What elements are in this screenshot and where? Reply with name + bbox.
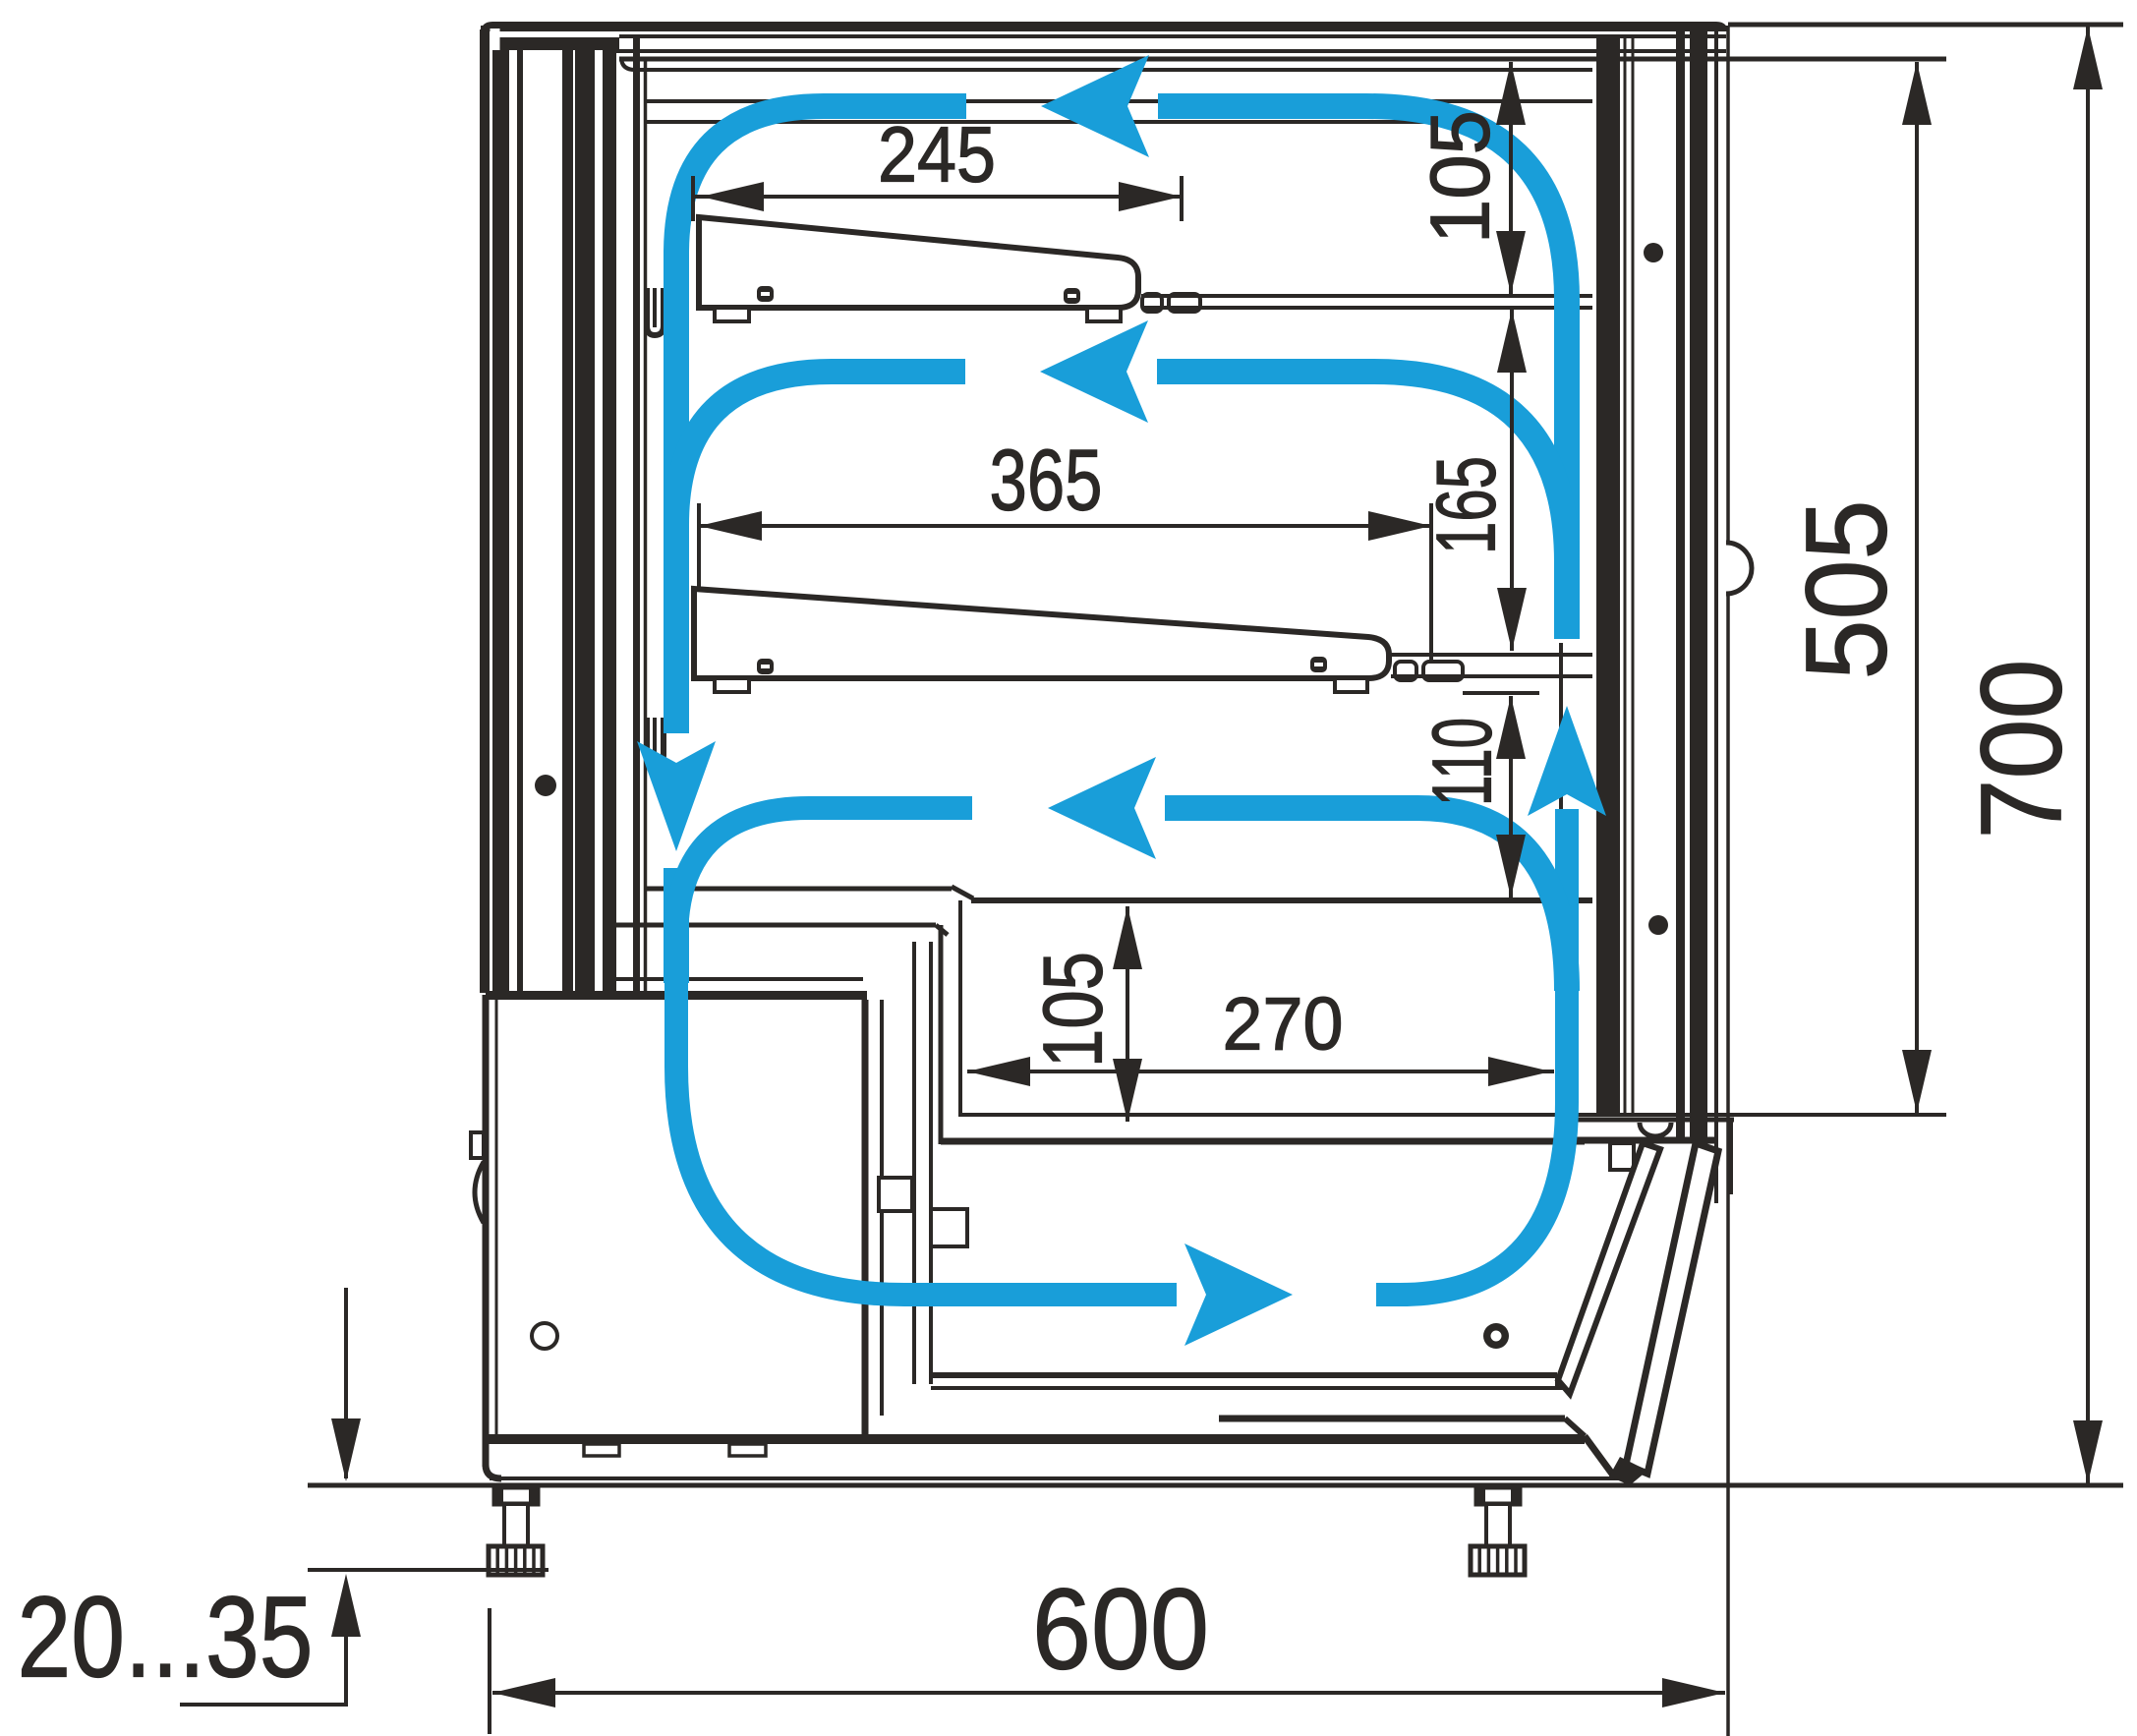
svg-text:505: 505 (1782, 500, 1911, 680)
svg-text:600: 600 (1032, 1565, 1209, 1694)
svg-text:165: 165 (1420, 456, 1514, 554)
svg-text:270: 270 (1223, 983, 1344, 1067)
svg-text:105: 105 (1027, 952, 1121, 1068)
svg-text:110: 110 (1416, 718, 1510, 806)
svg-text:20...35: 20...35 (18, 1573, 314, 1702)
svg-text:245: 245 (878, 111, 996, 199)
svg-text:365: 365 (990, 432, 1103, 529)
svg-text:105: 105 (1415, 110, 1508, 244)
svg-text:700: 700 (1957, 660, 2086, 839)
